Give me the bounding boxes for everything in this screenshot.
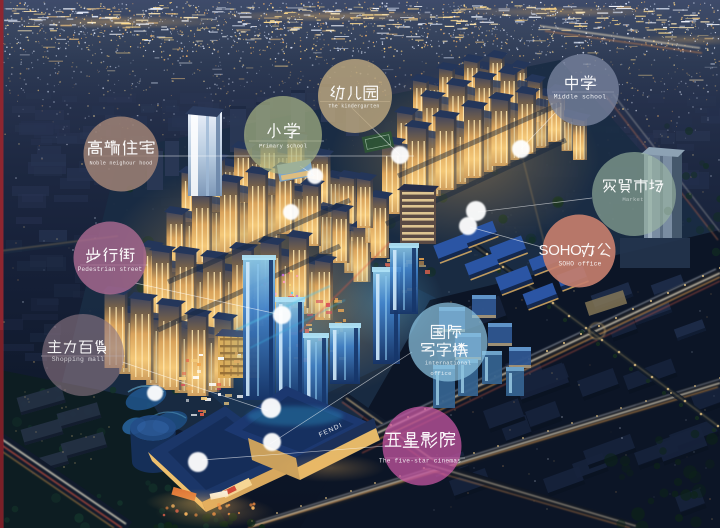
svg-text:The kindergarten: The kindergarten [328,104,379,110]
svg-text:SOHO: SOHO [539,242,582,259]
svg-text:Shopping mall: Shopping mall [52,356,104,363]
svg-text:SOHO office: SOHO office [558,261,601,268]
svg-text:Middle school: Middle school [554,94,606,101]
svg-text:Primary school: Primary school [259,144,307,150]
svg-text:Noble neighour hood: Noble neighour hood [90,161,153,167]
svg-text:The five-star cinemas: The five-star cinemas [379,458,461,465]
svg-text:office: office [430,370,451,377]
svg-text:international: international [425,360,472,367]
svg-text:Pedestrian street: Pedestrian street [78,266,143,273]
svg-text:Market: Market [622,196,643,203]
